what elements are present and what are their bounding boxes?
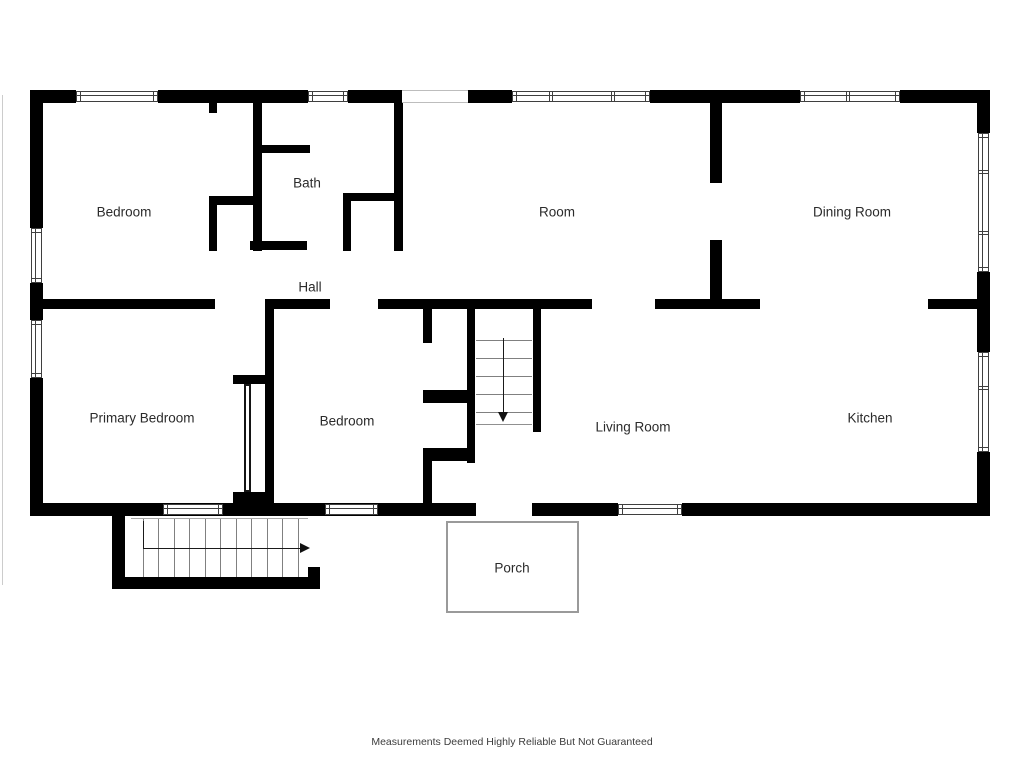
wall-segment [30, 378, 43, 516]
wall-segment [30, 503, 476, 516]
window-frame-line [329, 505, 330, 514]
window-frame-line [35, 321, 36, 377]
wall-segment [209, 196, 217, 251]
window-frame-line [979, 447, 988, 448]
stair-tread-line [476, 340, 532, 341]
room-label-bedroom-lower: Bedroom [320, 414, 375, 429]
window [618, 504, 682, 515]
window-frame-line [373, 505, 374, 514]
window-frame-line [312, 92, 313, 101]
window [163, 504, 223, 515]
window [978, 352, 989, 452]
wall-segment [710, 240, 722, 299]
wall-segment [233, 492, 265, 503]
room-label-living-room: Living Room [595, 420, 670, 435]
wall-segment [250, 241, 307, 250]
window-frame-line [677, 505, 678, 514]
stair-direction-arrow [300, 543, 310, 553]
stair-tread-line [143, 521, 144, 548]
disclaimer-text: Measurements Deemed Highly Reliable But … [371, 736, 652, 748]
wall-segment [977, 90, 990, 133]
wall-segment [308, 567, 320, 577]
wall-segment [977, 272, 990, 352]
window-frame-line [849, 92, 850, 101]
wall-segment [394, 103, 403, 251]
window-frame-line [614, 92, 615, 101]
window-frame-line [552, 92, 553, 101]
room-label-primary-bedroom: Primary Bedroom [89, 411, 194, 426]
window-frame-line [309, 95, 347, 96]
room-label-porch: Porch [494, 561, 529, 576]
wall-segment [158, 90, 308, 103]
wall-segment [343, 193, 403, 201]
wall-segment [30, 299, 215, 309]
room-label-kitchen: Kitchen [847, 411, 892, 426]
wall-opening [402, 90, 468, 103]
window-frame-line [32, 373, 41, 374]
window-frame-line [549, 92, 550, 101]
wall-segment [533, 308, 541, 432]
window [800, 91, 900, 102]
stair-tread-line [476, 376, 532, 377]
wall-segment [467, 308, 475, 463]
window-frame-line [35, 229, 36, 282]
window-frame-line [611, 92, 612, 101]
wall-segment [423, 308, 432, 343]
stair-tread-line [143, 548, 300, 549]
wall-segment [262, 145, 310, 153]
window [308, 91, 348, 102]
window-frame-line [846, 92, 847, 101]
window-frame-line [979, 170, 988, 171]
window-frame-line [979, 356, 988, 357]
window [325, 504, 378, 515]
stair-tread-line [2, 95, 3, 585]
stair-tread-line [476, 394, 532, 395]
wall-segment [348, 90, 402, 103]
stair-tread-line [503, 338, 504, 413]
room-label-dining-room: Dining Room [813, 205, 891, 220]
window-frame-line [164, 508, 222, 509]
wall-segment [650, 90, 800, 103]
window-frame-line [326, 508, 377, 509]
window [31, 320, 42, 378]
window-frame-line [32, 324, 41, 325]
window-frame-line [622, 505, 623, 514]
stair-tread-line [476, 424, 532, 425]
window-frame-line [895, 92, 896, 101]
window-frame-line [979, 234, 988, 235]
stair-tread-line [131, 518, 308, 519]
window-frame-line [32, 232, 41, 233]
closet-door [244, 384, 251, 492]
window-frame-line [516, 92, 517, 101]
wall-segment [265, 308, 274, 516]
window-frame-line [167, 505, 168, 514]
window-frame-line [513, 95, 649, 96]
stair-tread-line [476, 358, 532, 359]
window [76, 91, 158, 102]
window-frame-line [218, 505, 219, 514]
wall-segment [378, 299, 592, 309]
window-frame-line [979, 386, 988, 387]
window-frame-line [979, 137, 988, 138]
window-frame-line [153, 92, 154, 101]
window-frame-line [979, 389, 988, 390]
wall-segment [710, 103, 722, 183]
wall-segment [928, 299, 990, 309]
wall-segment [265, 299, 330, 309]
window-frame-line [804, 92, 805, 101]
window-frame-line [645, 92, 646, 101]
wall-segment [233, 375, 265, 384]
room-label-bedroom-upper: Bedroom [97, 205, 152, 220]
window [978, 133, 989, 272]
window-frame-line [982, 353, 983, 451]
window-frame-line [801, 95, 899, 96]
wall-segment [253, 103, 262, 251]
window-frame-line [979, 231, 988, 232]
wall-segment [343, 201, 351, 251]
window-frame-line [80, 92, 81, 101]
wall-segment [423, 448, 432, 516]
window [31, 228, 42, 283]
room-label-bath: Bath [293, 176, 321, 191]
wall-segment [209, 103, 217, 113]
wall-segment [532, 503, 618, 516]
floorplan-canvas: BedroomBathRoomDining RoomHallPrimary Be… [0, 0, 1024, 768]
wall-segment [30, 90, 43, 228]
window-frame-line [77, 95, 157, 96]
room-label-hall: Hall [298, 280, 321, 295]
window-frame-line [32, 278, 41, 279]
wall-segment [112, 577, 320, 589]
window-frame-line [619, 508, 681, 509]
wall-segment [655, 299, 760, 309]
wall-segment [468, 90, 512, 103]
window-frame-line [343, 92, 344, 101]
window-frame-line [979, 267, 988, 268]
wall-segment [682, 503, 990, 516]
window-frame-line [982, 134, 983, 271]
room-label-room: Room [539, 205, 575, 220]
stair-direction-arrow [498, 412, 508, 422]
window [512, 91, 650, 102]
window-frame-line [979, 173, 988, 174]
